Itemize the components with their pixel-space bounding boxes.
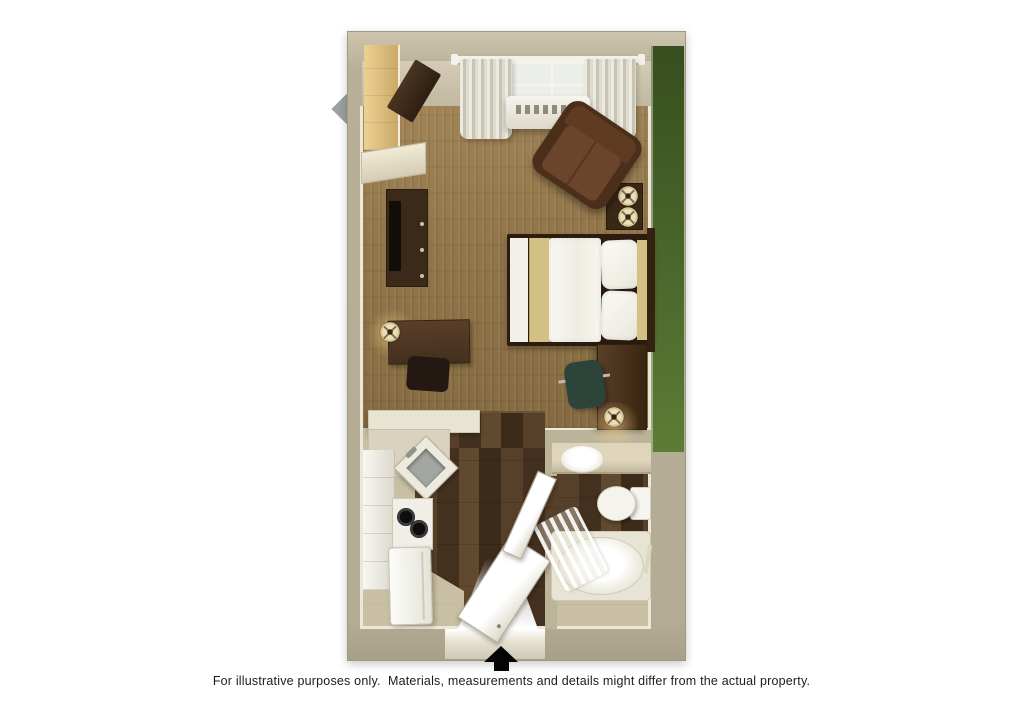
tv-stand-handles <box>420 222 424 226</box>
floor-plan-page: For illustrative purposes only. Material… <box>0 0 1023 716</box>
bed-runner <box>529 238 550 342</box>
office-chair <box>563 359 607 411</box>
curtain-rod-cap-left <box>451 54 458 65</box>
window-mullion-horizontal <box>512 84 592 86</box>
nightstand-lamp-icon <box>617 185 639 207</box>
baseboard-bottom-bathroom <box>557 626 651 629</box>
headboard-frame <box>647 228 655 352</box>
stove-burner <box>410 520 428 538</box>
refrigerator <box>388 546 433 625</box>
pillow-bottom <box>600 290 640 340</box>
vanity-sink <box>560 445 604 473</box>
bed-foot-blanket <box>510 238 528 342</box>
toilet-bowl <box>597 486 636 521</box>
bed-duvet <box>549 238 601 342</box>
refrigerator-door-seam <box>421 552 425 620</box>
door-handle <box>496 623 502 629</box>
curtain-rod-cap-right <box>638 54 645 65</box>
curtain-left <box>460 59 512 139</box>
desk-lamp-icon <box>379 321 401 343</box>
entry-arrow-icon <box>484 646 518 662</box>
desk-chair <box>406 356 450 393</box>
table-lamp-icon <box>603 406 625 428</box>
green-accent-wall <box>651 46 684 452</box>
pillow-top <box>600 239 640 289</box>
tv-screen <box>389 201 401 271</box>
entry-arrow-stem <box>494 661 509 671</box>
disclaimer-caption: For illustrative purposes only. Material… <box>0 674 1023 688</box>
nightstand-lamp-icon <box>617 206 639 228</box>
